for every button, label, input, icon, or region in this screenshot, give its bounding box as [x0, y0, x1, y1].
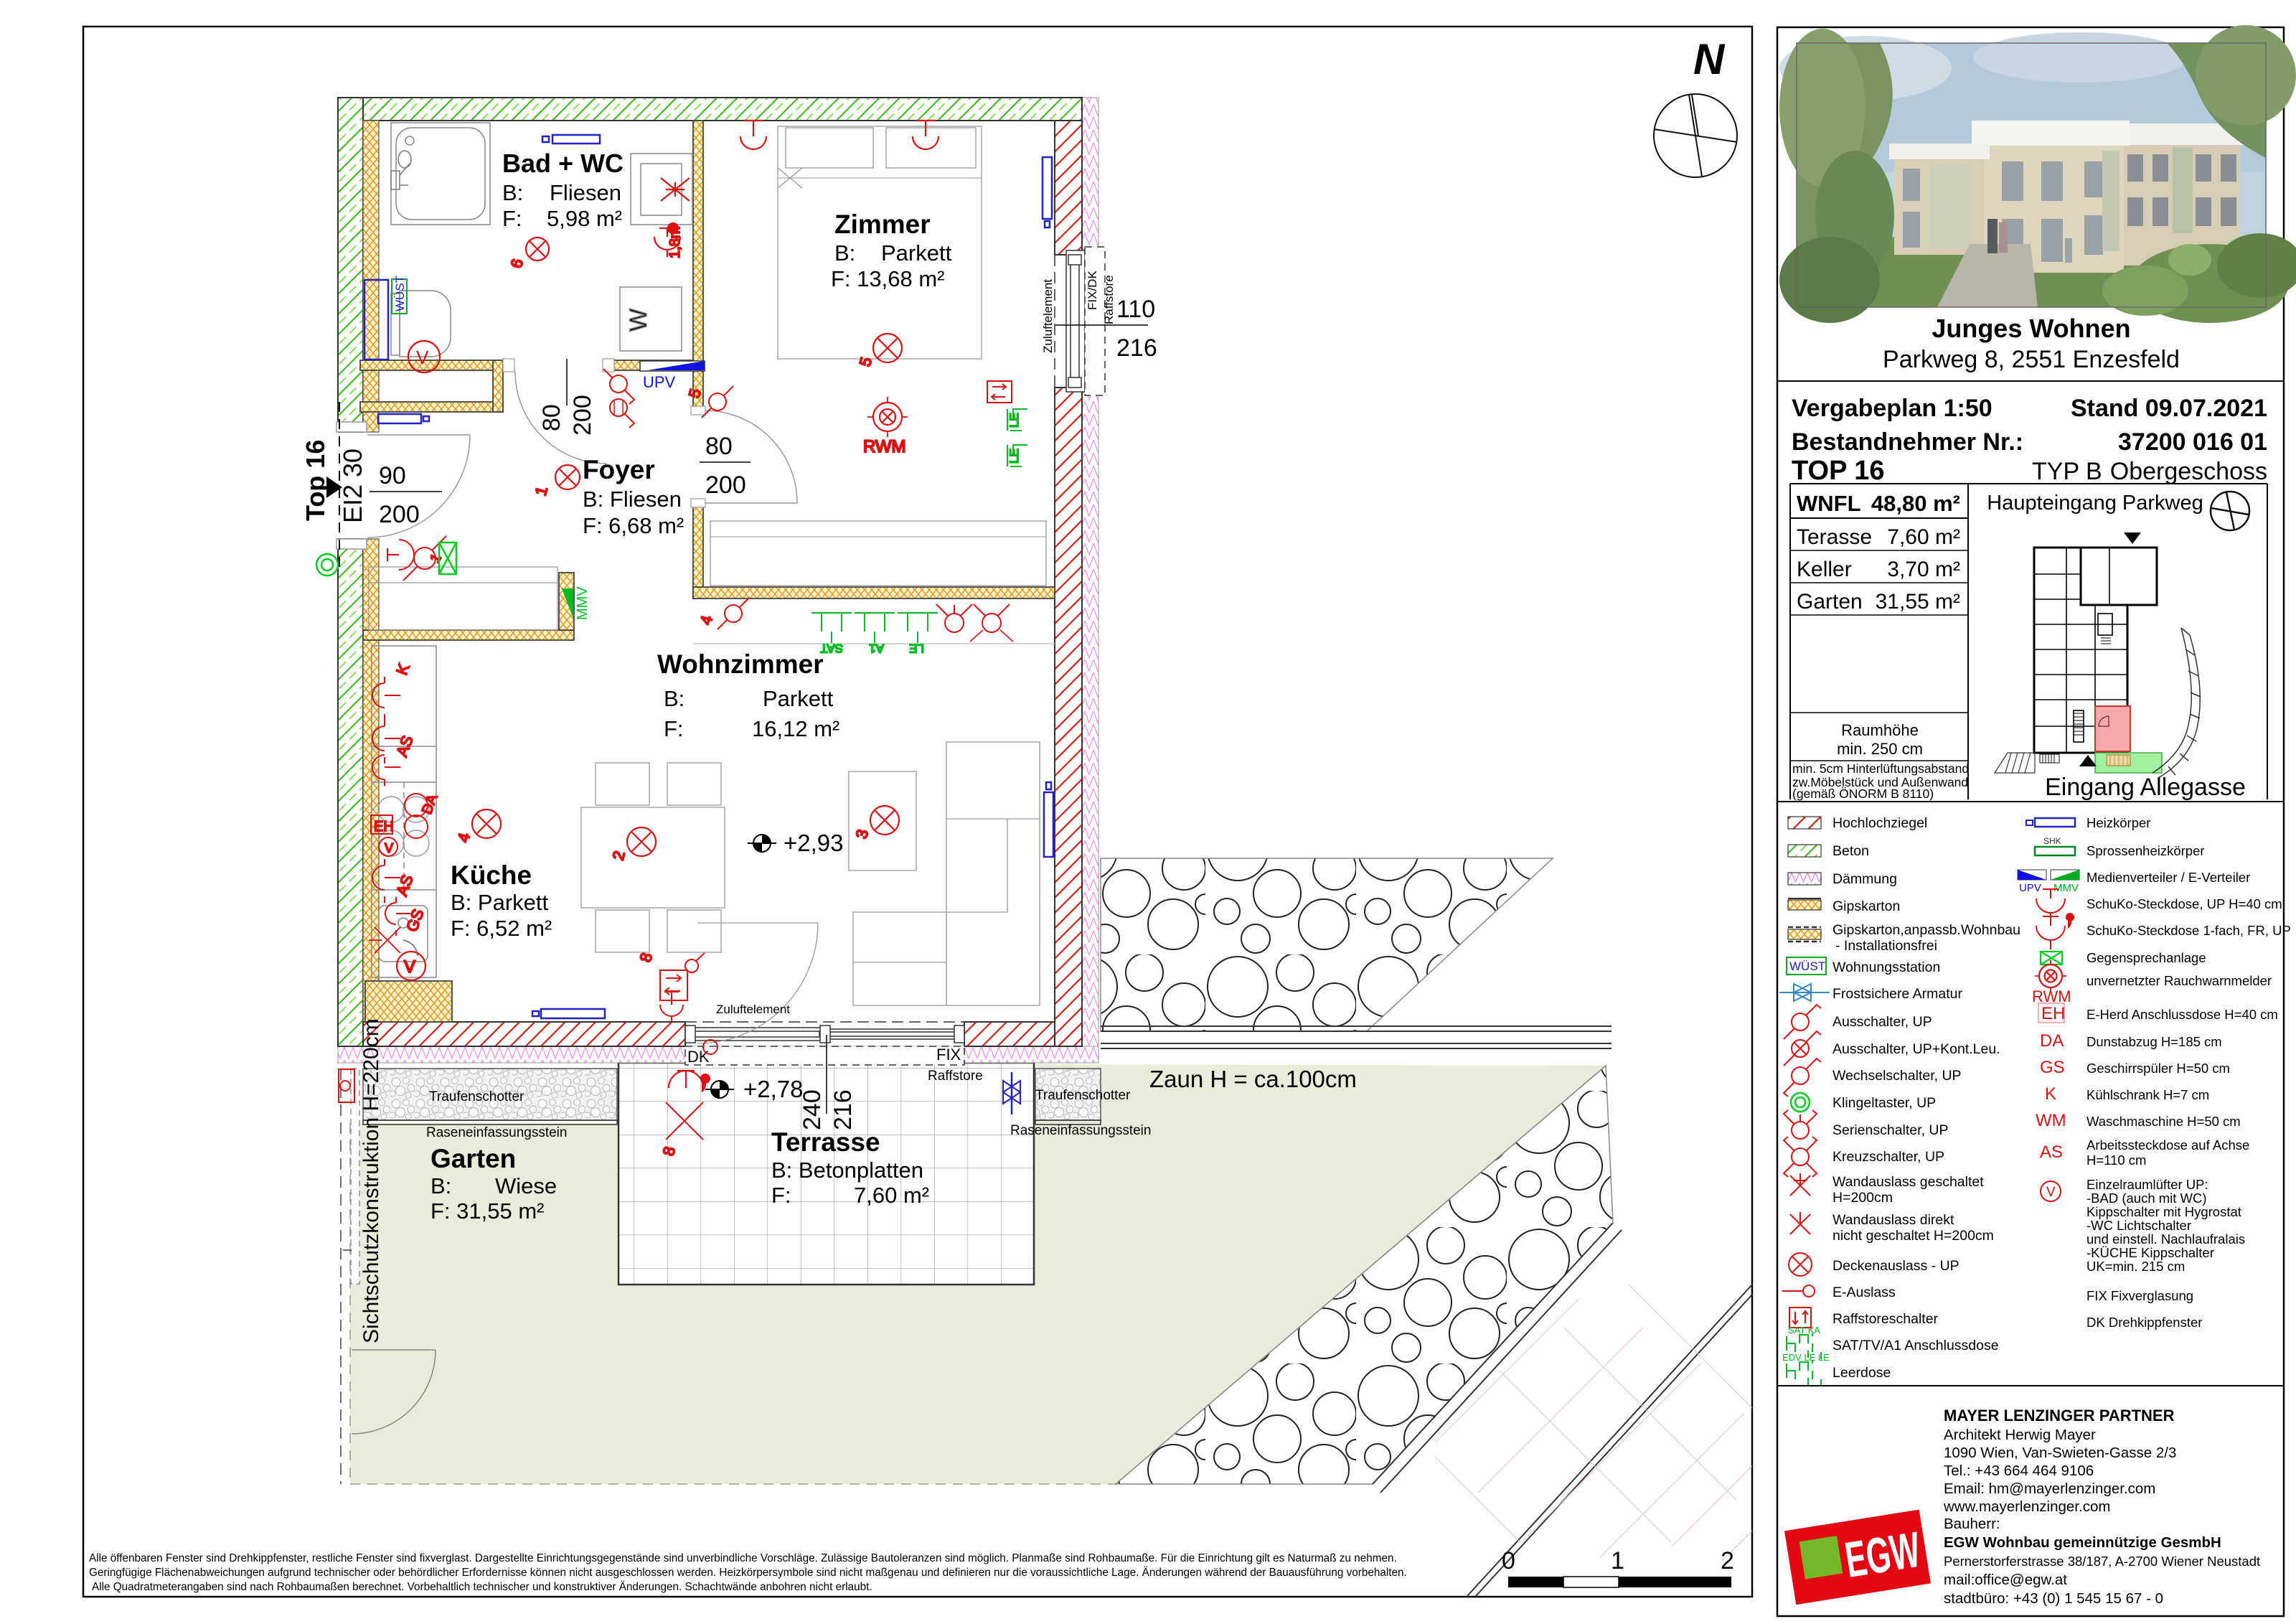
svg-text:MMV: MMV: [575, 586, 591, 620]
svg-text:Kippschalter mit Hygrostat: Kippschalter mit Hygrostat: [2086, 1204, 2241, 1219]
svg-text:H=200cm: H=200cm: [1832, 1190, 1893, 1206]
svg-text:Traufenschotter: Traufenschotter: [1035, 1088, 1131, 1103]
svg-text:Serienschalter, UP: Serienschalter, UP: [1832, 1122, 1949, 1138]
svg-text:Dämmung: Dämmung: [1832, 871, 1897, 887]
svg-text:DK: DK: [687, 1048, 710, 1066]
svg-text:Deckenauslass - UP: Deckenauslass - UP: [1832, 1258, 1959, 1274]
svg-text:- Installationsfrei: - Installationsfrei: [1835, 938, 1937, 954]
svg-text:Küche: Küche: [451, 860, 532, 890]
svg-text:UK=min. 215 cm: UK=min. 215 cm: [2086, 1259, 2185, 1274]
svg-text:nicht geschaltet H=200cm: nicht geschaltet H=200cm: [1832, 1228, 1994, 1244]
svg-text:E-Herd Anschlussdose H=40 cm: E-Herd Anschlussdose H=40 cm: [2086, 1007, 2278, 1022]
svg-text:16,12 m²: 16,12 m²: [752, 716, 839, 741]
svg-text:V: V: [2046, 1185, 2056, 1200]
svg-text:WÜST: WÜST: [1789, 959, 1825, 973]
svg-text:SchuKo-Steckdose, UP H=40 cm: SchuKo-Steckdose, UP H=40 cm: [2086, 896, 2282, 911]
svg-text:F:: F:: [502, 206, 522, 231]
svg-text:H=110 cm: H=110 cm: [2086, 1153, 2146, 1168]
svg-text:F: 13,68 m²: F: 13,68 m²: [831, 266, 945, 291]
svg-text:V: V: [385, 841, 393, 855]
svg-text:mail:office@egw.at: mail:office@egw.at: [1944, 1572, 2067, 1588]
svg-text:Traufenschotter: Traufenschotter: [429, 1089, 524, 1104]
svg-text:MMV: MMV: [2053, 882, 2079, 894]
svg-text:2: 2: [1721, 1547, 1734, 1574]
svg-text:Gipskarton: Gipskarton: [1832, 898, 1900, 914]
svg-text:5,98 m²: 5,98 m²: [547, 206, 622, 231]
svg-text:UPV: UPV: [2019, 882, 2041, 894]
svg-text:Kreuzschalter, UP: Kreuzschalter, UP: [1832, 1149, 1944, 1165]
svg-text:110: 110: [1116, 296, 1155, 323]
svg-text:Zaun H = ca.100cm: Zaun H = ca.100cm: [1149, 1066, 1357, 1092]
svg-text:Ausschalter, UP+Kont.Leu.: Ausschalter, UP+Kont.Leu.: [1832, 1041, 2000, 1057]
svg-text:SHK: SHK: [2043, 836, 2061, 846]
svg-text:Fliesen: Fliesen: [550, 180, 621, 205]
svg-text:SchuKo-Steckdose 1-fach, FR, U: SchuKo-Steckdose 1-fach, FR, UP: [2086, 923, 2291, 938]
svg-text:www.mayerlenzinger.com: www.mayerlenzinger.com: [1943, 1498, 2110, 1515]
svg-text:200: 200: [569, 395, 596, 436]
svg-text:Parkweg 8, 2551 Enzesfeld: Parkweg 8, 2551 Enzesfeld: [1883, 346, 2180, 373]
svg-text:90: 90: [379, 462, 406, 489]
svg-text:Geringfügige Flächenabweichung: Geringfügige Flächenabweichungen aufgrun…: [89, 1567, 1407, 1579]
svg-text:Heizkörper: Heizkörper: [2086, 815, 2150, 830]
svg-text:31,55 m²: 31,55 m²: [1876, 590, 1960, 614]
svg-text:+2,93: +2,93: [784, 830, 844, 856]
svg-text:Wandauslass direkt: Wandauslass direkt: [1832, 1212, 1954, 1228]
svg-text:F: 6,52 m²: F: 6,52 m²: [451, 916, 552, 941]
svg-text:Waschmaschine H=50 cm: Waschmaschine H=50 cm: [2086, 1114, 2241, 1129]
svg-text:7,60 m²: 7,60 m²: [1887, 525, 1960, 549]
svg-text:Wandauslass geschaltet: Wandauslass geschaltet: [1832, 1174, 1984, 1190]
svg-text:B:: B:: [502, 180, 523, 205]
svg-text:Vergabeplan 1:50: Vergabeplan 1:50: [1792, 395, 1992, 422]
svg-text:Alle öffenbaren Fenster sind D: Alle öffenbaren Fenster sind Drehkippfen…: [89, 1552, 1397, 1564]
svg-text:B: Parkett: B: Parkett: [451, 890, 548, 915]
svg-text:Keller: Keller: [1797, 558, 1852, 581]
svg-text:200: 200: [379, 501, 420, 528]
svg-text:K: K: [2045, 1084, 2056, 1104]
svg-text:Bauherr:: Bauherr:: [1944, 1516, 2000, 1532]
svg-text:DK Drehkippfenster: DK Drehkippfenster: [2086, 1315, 2202, 1330]
svg-text:Kühlschrank H=7 cm: Kühlschrank H=7 cm: [2086, 1087, 2209, 1102]
svg-text:FIX/DK: FIX/DK: [1086, 271, 1099, 310]
svg-text:Garten: Garten: [1797, 590, 1863, 614]
svg-text:V: V: [404, 957, 415, 977]
svg-text:216: 216: [1116, 334, 1157, 362]
svg-text:SAT: SAT: [820, 642, 843, 655]
svg-text:EGW: EGW: [1841, 1521, 1924, 1588]
svg-text:1: 1: [1611, 1547, 1624, 1574]
svg-text:-BAD (auch mit WC): -BAD (auch mit WC): [2086, 1191, 2207, 1206]
svg-text:B:: B:: [834, 240, 855, 266]
svg-text:Sichtschutzkonstruktion H=220c: Sichtschutzkonstruktion H=220cm: [359, 1018, 383, 1343]
svg-text:-KÜCHE Kippschalter: -KÜCHE Kippschalter: [2086, 1245, 2214, 1260]
svg-text:80: 80: [538, 404, 565, 431]
svg-text:Zimmer: Zimmer: [834, 210, 931, 239]
svg-text:Raffstore: Raffstore: [1102, 275, 1116, 324]
svg-text:GS: GS: [2040, 1058, 2065, 1077]
svg-text:Wohnungsstation: Wohnungsstation: [1832, 959, 1940, 975]
svg-text:Obergeschoss: Obergeschoss: [2110, 458, 2267, 485]
svg-text:80: 80: [705, 433, 733, 460]
svg-text:Raffstore: Raffstore: [928, 1069, 983, 1084]
svg-text:Email: hm@mayerlenzinger.com: Email: hm@mayerlenzinger.com: [1944, 1480, 2155, 1497]
svg-text:Terasse: Terasse: [1797, 525, 1872, 549]
svg-text:V: V: [416, 347, 429, 368]
svg-text:Beton: Beton: [1832, 843, 1869, 859]
svg-text:N: N: [1693, 35, 1726, 83]
svg-text:1,8m: 1,8m: [667, 227, 683, 258]
svg-text:216: 216: [829, 1089, 857, 1130]
svg-text:DA: DA: [2040, 1031, 2064, 1051]
svg-text:Zuluftelement: Zuluftelement: [716, 1003, 790, 1016]
svg-text:Haupteingang Parkweg: Haupteingang Parkweg: [1987, 492, 2203, 515]
svg-text:FIX: FIX: [936, 1046, 961, 1064]
svg-text:+2,78: +2,78: [743, 1076, 804, 1102]
svg-text:Terrasse: Terrasse: [771, 1127, 880, 1157]
svg-text:SAT KA: SAT KA: [1788, 1325, 1820, 1336]
svg-text:TOP 16: TOP 16: [1792, 456, 1885, 486]
svg-text:FIX Fixverglasung: FIX Fixverglasung: [2086, 1288, 2193, 1303]
svg-text:LE: LE: [1007, 413, 1021, 428]
svg-text:B:: B:: [430, 1173, 451, 1198]
svg-text:Raffstoreschalter: Raffstoreschalter: [1832, 1311, 1939, 1327]
svg-text:Parkett: Parkett: [763, 686, 834, 711]
svg-text:EI2 30: EI2 30: [338, 449, 367, 523]
svg-text:Raumhöhe: Raumhöhe: [1841, 721, 1919, 739]
svg-text:Garten: Garten: [430, 1144, 516, 1173]
svg-text:-WC Lichtschalter: -WC Lichtschalter: [2086, 1218, 2191, 1233]
svg-text:37200 016 01: 37200 016 01: [2118, 428, 2267, 456]
svg-text:48,80 m²: 48,80 m²: [1871, 491, 1960, 516]
svg-text:Bestandnehmer Nr.:: Bestandnehmer Nr.:: [1792, 428, 2023, 456]
svg-text:Gegensprechanlage: Gegensprechanlage: [2086, 950, 2206, 965]
svg-text:0: 0: [1502, 1547, 1515, 1574]
svg-text:Klingeltaster, UP: Klingeltaster, UP: [1832, 1095, 1936, 1111]
svg-text:Ausschalter, UP: Ausschalter, UP: [1832, 1014, 1932, 1030]
svg-text:Bad + WC: Bad + WC: [502, 149, 624, 178]
svg-text:Raseneinfassungsstein: Raseneinfassungsstein: [426, 1125, 567, 1140]
svg-text:Gipskarton,anpassb.Wohnbau: Gipskarton,anpassb.Wohnbau: [1832, 922, 2020, 938]
svg-text:Raseneinfassungsstein: Raseneinfassungsstein: [1010, 1123, 1151, 1138]
svg-text:Geschirrspüler H=50 cm: Geschirrspüler H=50 cm: [2086, 1061, 2230, 1076]
svg-text:Top 16: Top 16: [301, 440, 330, 521]
svg-text:RWM: RWM: [863, 437, 906, 456]
svg-text:unvernetzter Rauchwarnmelder: unvernetzter Rauchwarnmelder: [2086, 973, 2272, 988]
svg-text:Tel.: +43 664 464 9106: Tel.: +43 664 464 9106: [1944, 1463, 2094, 1479]
svg-text:Wechselschalter, UP: Wechselschalter, UP: [1832, 1068, 1962, 1084]
svg-text:1090 Wien, Van-Swieten-Gasse 2: 1090 Wien, Van-Swieten-Gasse 2/3: [1944, 1445, 2176, 1461]
svg-text:B:: B:: [664, 686, 684, 711]
svg-text:B: Fliesen: B: Fliesen: [583, 487, 682, 512]
svg-text:min. 5cm Hinterlüftungsabstand: min. 5cm Hinterlüftungsabstand: [1792, 761, 1969, 776]
svg-text:F: 6,68 m²: F: 6,68 m²: [583, 513, 684, 538]
svg-text:F:: F:: [664, 716, 684, 741]
svg-text:LE: LE: [909, 642, 924, 655]
svg-text:Dunstabzug H=185 cm: Dunstabzug H=185 cm: [2086, 1034, 2222, 1049]
svg-text:Alle Quadratmeterangaben sind: Alle Quadratmeterangaben sind nach Rohba…: [92, 1581, 872, 1593]
svg-text:TYP B: TYP B: [2032, 458, 2102, 485]
svg-text:Wohnzimmer: Wohnzimmer: [657, 649, 824, 679]
svg-text:Zuluftelement: Zuluftelement: [1041, 279, 1055, 353]
svg-text:Hochlochziegel: Hochlochziegel: [1832, 815, 1927, 831]
svg-text:MAYER LENZINGER PARTNER: MAYER LENZINGER PARTNER: [1944, 1407, 2175, 1424]
svg-text:Arbeitssteckdose auf Achse: Arbeitssteckdose auf Achse: [2086, 1137, 2249, 1153]
svg-text:(gemäß ÖNORM B 8110): (gemäß ÖNORM B 8110): [1792, 787, 1934, 801]
svg-text:B: Betonplatten: B: Betonplatten: [771, 1158, 923, 1183]
svg-text:Frostsichere Armatur: Frostsichere Armatur: [1832, 986, 1962, 1002]
svg-text:Sprossenheizkörper: Sprossenheizkörper: [2086, 843, 2205, 858]
svg-text:AS: AS: [2040, 1142, 2063, 1162]
svg-text:7,60 m²: 7,60 m²: [854, 1183, 929, 1208]
svg-text:Junges Wohnen: Junges Wohnen: [1932, 314, 2130, 343]
svg-text:Architekt Herwig Mayer: Architekt Herwig Mayer: [1944, 1427, 2096, 1443]
svg-text:Einzelraumlüfter UP:: Einzelraumlüfter UP:: [2086, 1177, 2208, 1192]
svg-text:Leerdose: Leerdose: [1832, 1365, 1891, 1381]
svg-text:UPV: UPV: [643, 373, 676, 391]
svg-text:WÜST: WÜST: [393, 276, 407, 311]
svg-text:200: 200: [705, 471, 746, 499]
svg-text:WNFL: WNFL: [1797, 491, 1861, 516]
svg-text:SAT/TV/A1 Anschlussdose: SAT/TV/A1 Anschlussdose: [1832, 1338, 1999, 1353]
svg-text:min. 250 cm: min. 250 cm: [1837, 740, 1923, 758]
svg-text:F: 31,55 m²: F: 31,55 m²: [430, 1198, 545, 1224]
svg-text:3,70 m²: 3,70 m²: [1887, 558, 1960, 581]
svg-text:EDV LE LE: EDV LE LE: [1782, 1352, 1830, 1363]
svg-text:EGW Wohnbau gemeinnützige Gesm: EGW Wohnbau gemeinnützige GesmbH: [1944, 1534, 2221, 1551]
svg-text:LE: LE: [1007, 449, 1021, 464]
svg-text:EH: EH: [374, 819, 394, 835]
svg-text:Wiese: Wiese: [495, 1173, 557, 1198]
svg-text:WM: WM: [2036, 1111, 2066, 1130]
svg-text:Medienverteiler / E-Verteiler: Medienverteiler / E-Verteiler: [2086, 870, 2250, 885]
svg-text:F:: F:: [771, 1183, 791, 1208]
svg-text:Eingang Allegasse: Eingang Allegasse: [2045, 774, 2246, 801]
svg-text:E-Auslass: E-Auslass: [1832, 1285, 1896, 1300]
svg-text:Foyer: Foyer: [583, 455, 655, 484]
svg-text:Stand 09.07.2021: Stand 09.07.2021: [2071, 395, 2267, 422]
svg-text:EH: EH: [2041, 1004, 2065, 1023]
svg-text:und einstell. Nachlaufralais: und einstell. Nachlaufralais: [2086, 1231, 2245, 1247]
svg-text:Pernerstorferstrasse 38/187, A: Pernerstorferstrasse 38/187, A-2700 Wien…: [1944, 1554, 2260, 1569]
svg-text:W: W: [625, 309, 652, 332]
svg-text:Parkett: Parkett: [881, 240, 952, 266]
svg-text:stadtbüro: +43 (0) 1 545 15 67: stadtbüro: +43 (0) 1 545 15 67 - 0: [1944, 1590, 2163, 1607]
svg-text:A1: A1: [869, 642, 884, 655]
